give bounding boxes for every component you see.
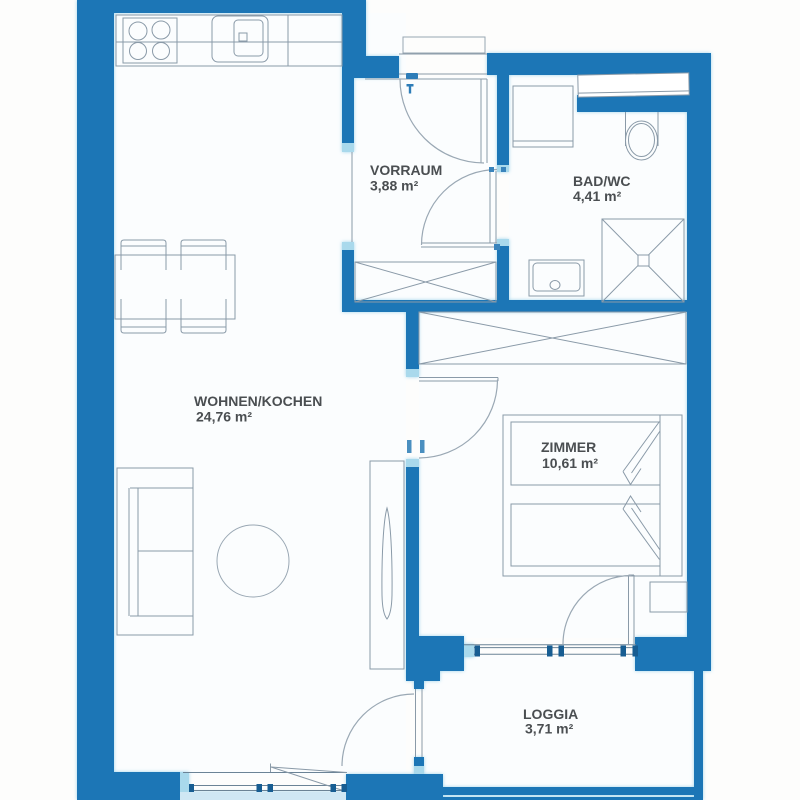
svg-text:3,71 m²: 3,71 m² [525,721,574,737]
svg-text:10,61 m²: 10,61 m² [542,455,598,471]
svg-text:VORRAUM: VORRAUM [370,162,442,178]
svg-text:4,41 m²: 4,41 m² [573,188,622,204]
svg-text:ZIMMER: ZIMMER [541,439,596,455]
svg-text:BAD/WC: BAD/WC [573,173,631,189]
svg-text:WOHNEN/KOCHEN: WOHNEN/KOCHEN [194,393,322,409]
svg-text:3,88 m²: 3,88 m² [370,178,419,194]
svg-text:24,76 m²: 24,76 m² [196,409,252,425]
